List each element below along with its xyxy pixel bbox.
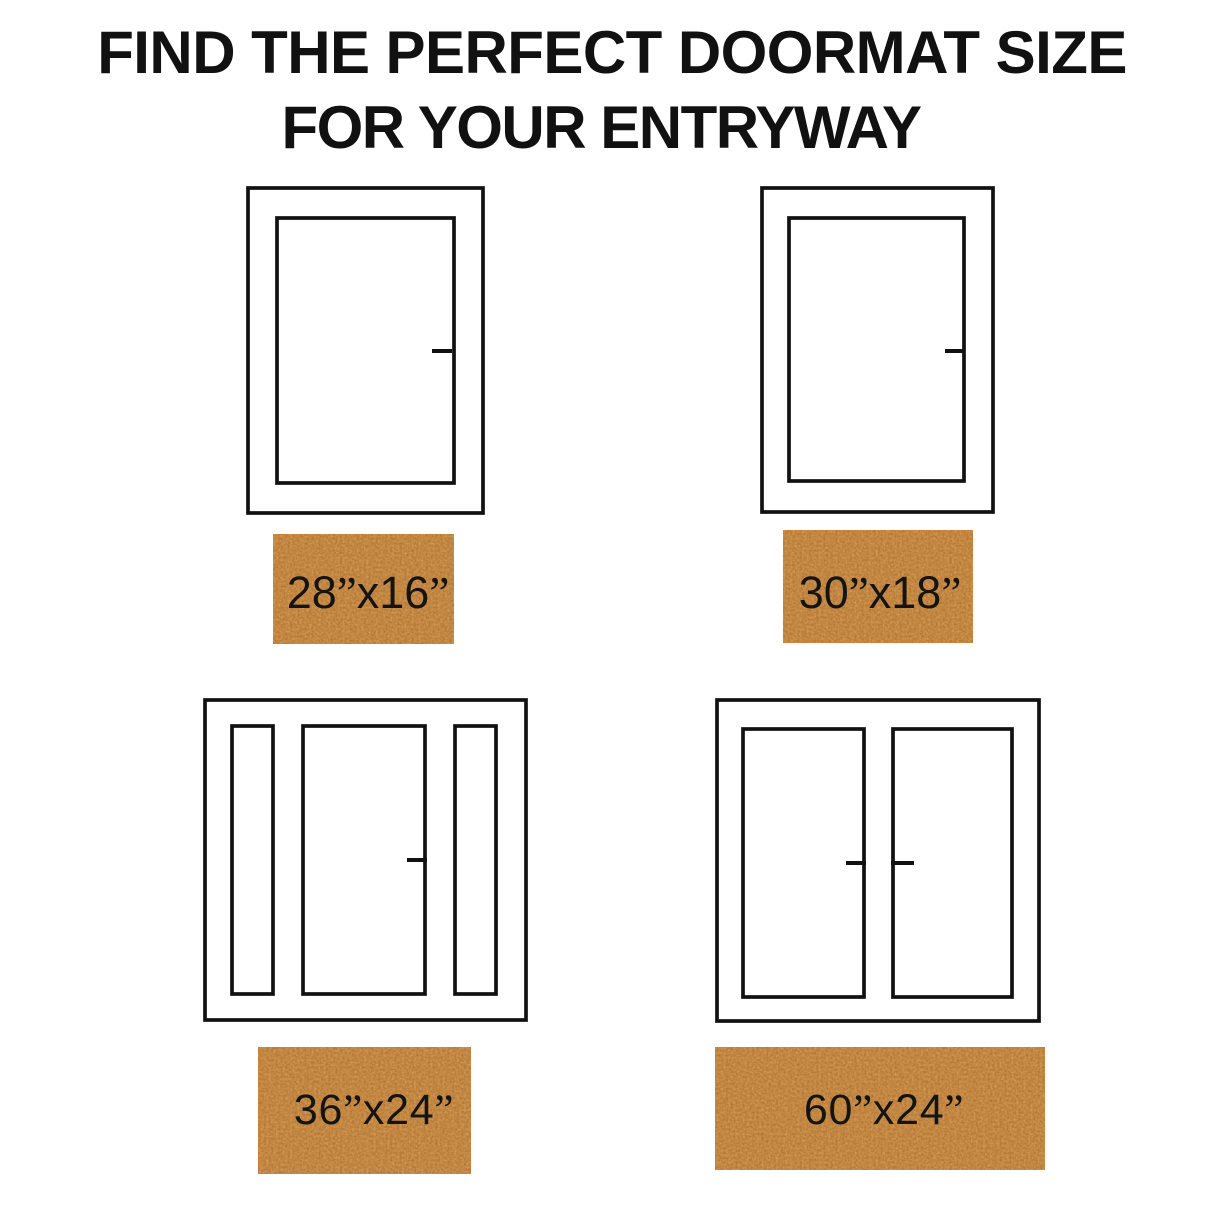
svg-text:28”x16”: 28”x16”: [287, 567, 450, 618]
svg-text:60”x24”: 60”x24”: [804, 1086, 964, 1134]
svg-text:30”x18”: 30”x18”: [799, 567, 962, 618]
svg-text:FIND THE PERFECT DOORMAT SIZE: FIND THE PERFECT DOORMAT SIZE: [97, 19, 1127, 86]
svg-text:36”x24”: 36”x24”: [294, 1086, 454, 1134]
svg-text:FOR YOUR ENTRYWAY: FOR YOUR ENTRYWAY: [281, 94, 922, 161]
